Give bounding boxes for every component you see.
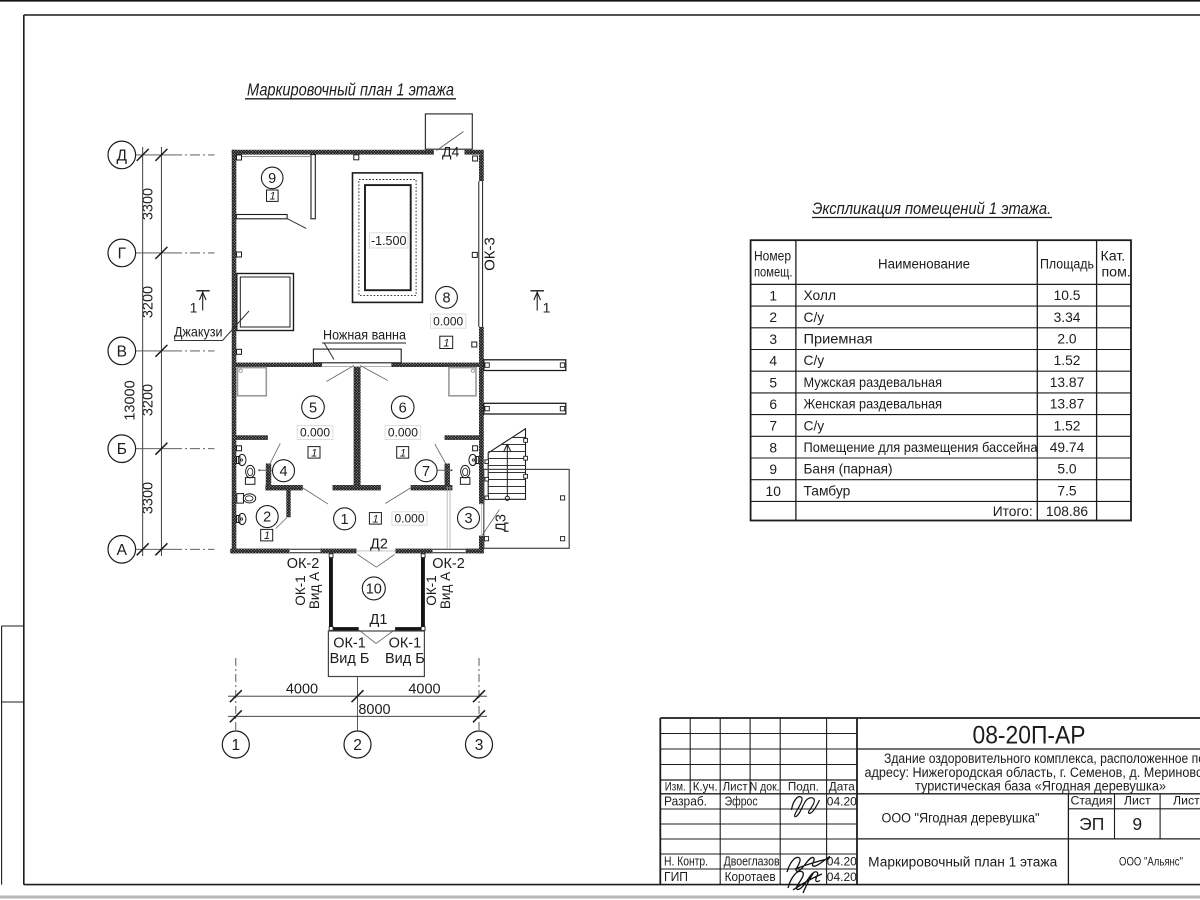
svg-text:Вид Б: Вид Б (385, 651, 425, 667)
svg-text:Номер: Номер (754, 249, 791, 265)
svg-text:С/у: С/у (804, 418, 825, 433)
svg-text:Листов: Листов (1173, 793, 1200, 807)
svg-text:туристическая база «Ягодная де: туристическая база «Ягодная деревушка» (915, 779, 1166, 794)
svg-text:Итого:: Итого: (993, 504, 1033, 519)
svg-text:ОК-3: ОК-3 (482, 237, 499, 271)
svg-text:Ножная ванна: Ножная ванна (323, 327, 406, 343)
svg-text:ОК-2: ОК-2 (287, 556, 320, 572)
svg-text:7.5: 7.5 (1057, 483, 1077, 498)
svg-text:ОК-1: ОК-1 (424, 575, 439, 605)
svg-text:1: 1 (769, 289, 777, 304)
svg-text:Б: Б (117, 441, 127, 458)
svg-text:1: 1 (231, 737, 240, 754)
svg-text:Г: Г (118, 245, 127, 262)
svg-text:49.74: 49.74 (1050, 440, 1085, 455)
svg-text:Вид А: Вид А (438, 572, 453, 609)
svg-text:8: 8 (769, 440, 777, 455)
svg-text:4000: 4000 (286, 682, 318, 698)
svg-text:Маркировочный план 1 этажа: Маркировочный план 1 этажа (868, 855, 1058, 870)
svg-text:помещ.: помещ. (754, 265, 793, 281)
svg-text:6: 6 (399, 400, 407, 416)
svg-text:3300: 3300 (141, 188, 157, 220)
svg-text:Вид А: Вид А (307, 572, 322, 609)
svg-text:2: 2 (263, 510, 271, 526)
svg-text:10: 10 (366, 582, 382, 598)
svg-text:9: 9 (1132, 814, 1142, 834)
svg-text:ОК-2: ОК-2 (432, 556, 465, 572)
svg-text:Д: Д (117, 147, 128, 164)
svg-text:108.86: 108.86 (1046, 504, 1089, 519)
svg-text:2.0: 2.0 (1057, 332, 1077, 347)
svg-text:Н. Контр.: Н. Контр. (664, 853, 708, 868)
svg-text:7: 7 (769, 419, 777, 434)
svg-text:Дата: Дата (829, 779, 855, 793)
svg-text:Д3: Д3 (494, 514, 510, 532)
svg-text:1: 1 (373, 513, 379, 525)
svg-text:Подп.: Подп. (788, 779, 819, 793)
svg-text:Баня (парная): Баня (парная) (804, 462, 893, 477)
svg-text:С/у: С/у (804, 310, 825, 325)
svg-text:0.000: 0.000 (433, 314, 463, 328)
svg-text:9: 9 (769, 462, 777, 477)
svg-text:ГИП: ГИП (664, 869, 688, 884)
svg-text:0.000: 0.000 (388, 426, 418, 440)
svg-text:1: 1 (543, 300, 551, 316)
svg-text:1: 1 (190, 300, 198, 316)
svg-text:08-20П-АР: 08-20П-АР (973, 722, 1086, 750)
svg-text:3: 3 (464, 511, 472, 527)
svg-text:Джакузи: Джакузи (174, 324, 223, 340)
svg-text:ООО "Альянс": ООО "Альянс" (1119, 855, 1183, 869)
svg-text:N док.: N док. (750, 779, 780, 793)
svg-text:Изм.: Изм. (665, 779, 686, 793)
svg-text:Женская раздевальная: Женская раздевальная (804, 397, 943, 412)
svg-text:04.20: 04.20 (827, 870, 857, 884)
svg-text:1: 1 (269, 191, 275, 203)
svg-text:3300: 3300 (141, 482, 157, 514)
svg-text:ЭП: ЭП (1079, 814, 1104, 834)
svg-text:Площадь: Площадь (1040, 257, 1094, 273)
svg-text:Коротаев: Коротаев (725, 869, 776, 884)
svg-text:Мужская раздевальная: Мужская раздевальная (804, 375, 943, 390)
svg-text:10.5: 10.5 (1054, 288, 1081, 303)
svg-text:2: 2 (769, 310, 777, 325)
svg-text:К.уч.: К.уч. (693, 779, 718, 793)
svg-text:Помещение для размещения бассе: Помещение для размещения бассейна (804, 440, 1038, 455)
svg-text:ОК-1: ОК-1 (389, 636, 422, 652)
svg-text:5: 5 (309, 400, 317, 416)
svg-text:13.87: 13.87 (1050, 375, 1085, 390)
svg-text:Лист: Лист (1124, 793, 1151, 807)
svg-text:Эфрос: Эфрос (725, 793, 758, 808)
svg-text:Д1: Д1 (370, 612, 388, 628)
svg-text:4: 4 (279, 464, 287, 480)
svg-text:Маркировочный план 1 этажа: Маркировочный план 1 этажа (247, 80, 454, 100)
svg-text:7: 7 (422, 464, 430, 480)
svg-text:3: 3 (769, 332, 777, 347)
svg-text:Вид Б: Вид Б (330, 651, 370, 667)
svg-text:6: 6 (769, 397, 777, 412)
svg-text:3: 3 (475, 737, 484, 754)
svg-text:ОК-1: ОК-1 (333, 636, 366, 652)
svg-text:-1.500: -1.500 (371, 234, 406, 248)
svg-text:Экспликация помещений 1 этажа.: Экспликация помещений 1 этажа. (812, 200, 1051, 218)
svg-text:2: 2 (353, 737, 362, 754)
svg-text:Д4: Д4 (442, 144, 459, 160)
svg-text:1: 1 (400, 447, 406, 459)
svg-text:Д2: Д2 (370, 537, 388, 553)
svg-text:10: 10 (766, 484, 782, 499)
svg-text:13.87: 13.87 (1050, 397, 1085, 412)
svg-text:3200: 3200 (141, 384, 157, 416)
svg-text:ОК-1: ОК-1 (293, 575, 308, 605)
svg-text:8000: 8000 (358, 702, 390, 718)
svg-text:Тамбур: Тамбур (804, 483, 851, 498)
svg-text:4000: 4000 (408, 682, 440, 698)
svg-text:Кат.: Кат. (1101, 249, 1126, 265)
svg-text:Стадия: Стадия (1070, 793, 1112, 807)
svg-text:Наименование: Наименование (878, 257, 970, 273)
svg-text:0.000: 0.000 (394, 512, 424, 526)
svg-text:Двоеглазов: Двоеглазов (724, 853, 780, 868)
svg-text:3.34: 3.34 (1054, 310, 1081, 325)
svg-text:4: 4 (769, 354, 777, 369)
svg-text:3200: 3200 (141, 286, 157, 318)
svg-text:Здание оздоровительного компле: Здание оздоровительного комплекса, распо… (884, 751, 1200, 766)
svg-text:9: 9 (268, 171, 276, 187)
svg-text:5.0: 5.0 (1057, 462, 1077, 477)
svg-text:13000: 13000 (123, 380, 139, 420)
svg-text:8: 8 (442, 290, 450, 306)
svg-text:04.20: 04.20 (827, 854, 857, 868)
svg-text:Холл: Холл (804, 288, 837, 303)
svg-text:С/у: С/у (804, 353, 825, 368)
svg-text:1: 1 (443, 338, 449, 350)
svg-text:пом.: пом. (1102, 265, 1131, 281)
svg-text:04.20: 04.20 (827, 794, 857, 808)
svg-text:Лист: Лист (723, 779, 748, 793)
svg-text:5: 5 (769, 375, 777, 390)
svg-text:ООО "Ягодная деревушка": ООО "Ягодная деревушка" (882, 811, 1040, 826)
svg-text:1: 1 (264, 530, 270, 542)
svg-text:В: В (117, 343, 127, 360)
svg-text:Приемная: Приемная (804, 332, 873, 347)
svg-text:1.52: 1.52 (1054, 353, 1081, 368)
svg-text:1: 1 (311, 447, 317, 459)
svg-text:0.000: 0.000 (300, 426, 330, 440)
svg-text:Разраб.: Разраб. (664, 793, 707, 808)
svg-text:А: А (117, 542, 128, 559)
svg-text:1: 1 (341, 512, 349, 528)
svg-text:1.52: 1.52 (1054, 418, 1081, 433)
